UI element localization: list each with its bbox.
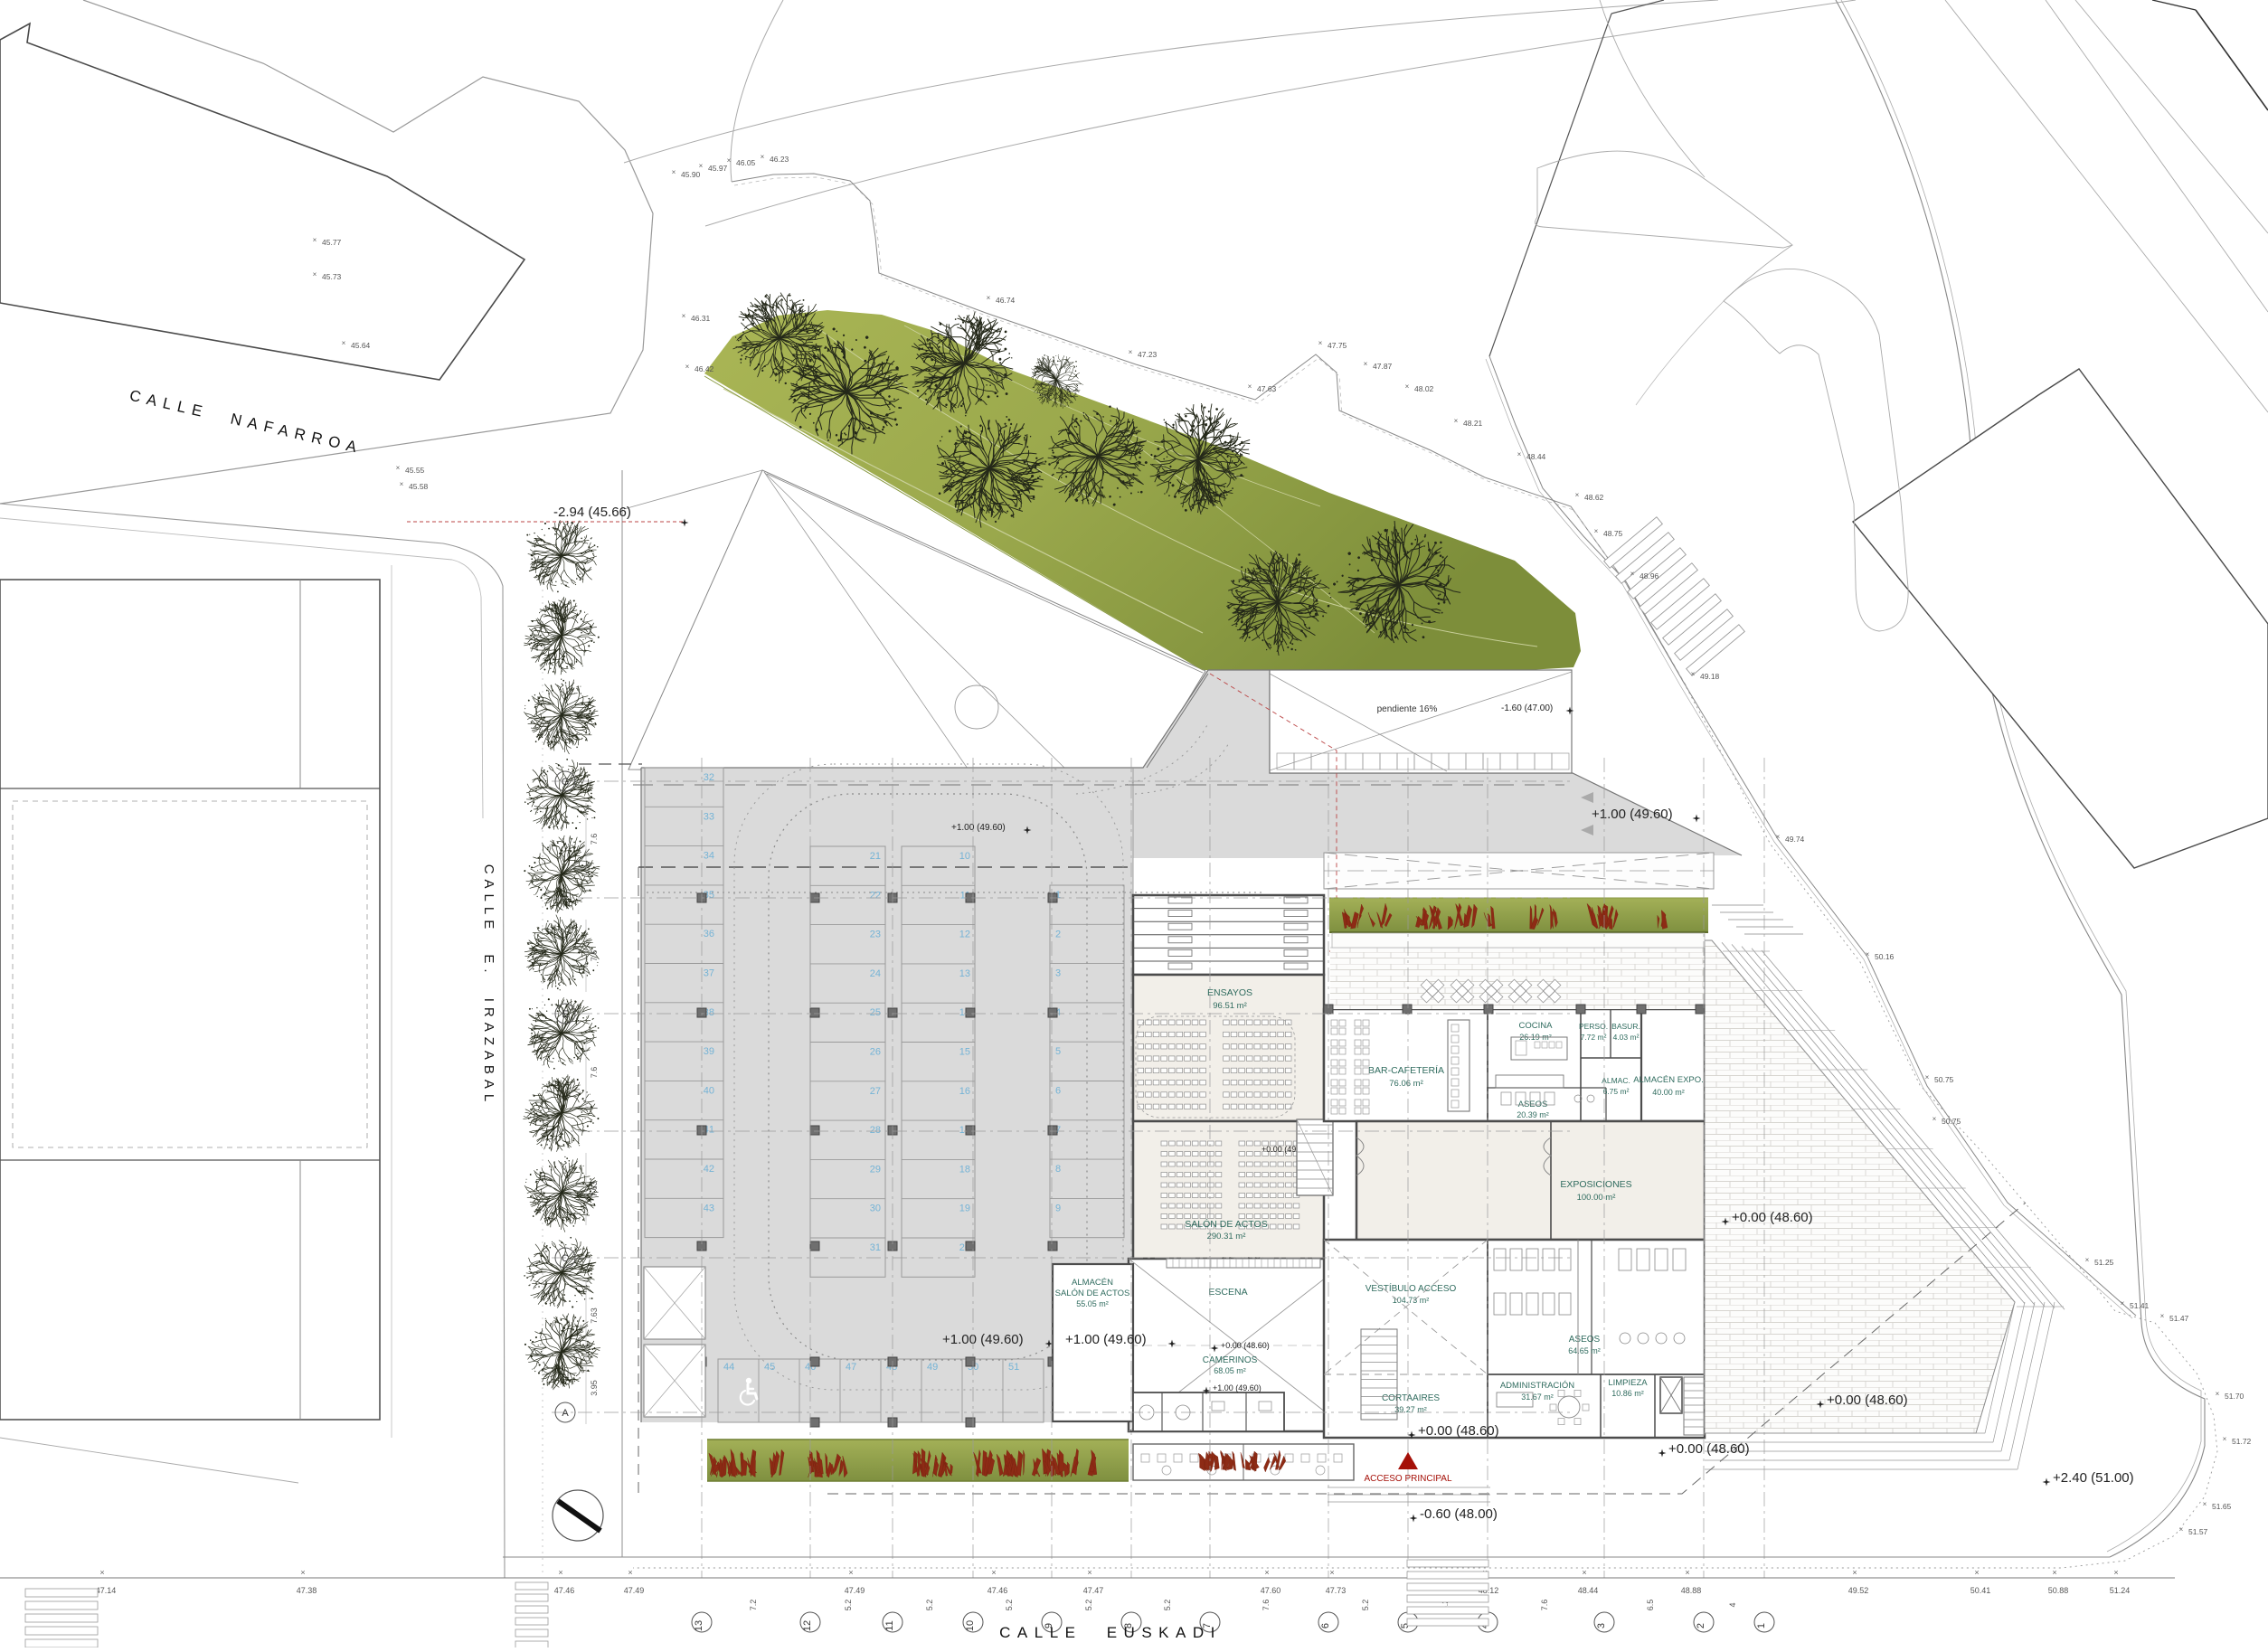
svg-text:76.06 m²: 76.06 m² [1389, 1079, 1423, 1089]
svg-text:×: × [2113, 1568, 2118, 1577]
svg-text:A: A [562, 1408, 569, 1419]
svg-text:50.41: 50.41 [1970, 1586, 1991, 1595]
svg-text:23: 23 [870, 930, 881, 940]
svg-text:10.86 m²: 10.86 m² [1611, 1389, 1644, 1398]
svg-text:×: × [628, 1568, 632, 1577]
svg-text:45.58: 45.58 [409, 482, 429, 491]
svg-text:3: 3 [1596, 1623, 1607, 1628]
svg-text:+0.00 (48.60): +0.00 (48.60) [1732, 1210, 1813, 1225]
svg-text:G: G [562, 777, 570, 788]
svg-text:45.73: 45.73 [322, 272, 342, 281]
svg-text:29: 29 [870, 1164, 881, 1175]
svg-text:40.00 m²: 40.00 m² [1652, 1088, 1685, 1097]
svg-text:45.64: 45.64 [351, 341, 371, 350]
svg-text:48.96: 48.96 [1640, 571, 1659, 581]
svg-text:15: 15 [959, 1047, 970, 1058]
svg-text:16: 16 [959, 1086, 970, 1097]
svg-text:LIMPIEZA: LIMPIEZA [1608, 1378, 1648, 1388]
svg-text:×: × [2216, 1390, 2220, 1398]
svg-text:CALLE E. IRAZABAL: CALLE E. IRAZABAL [481, 864, 496, 1108]
svg-text:7.6: 7.6 [590, 1067, 599, 1079]
svg-text:×: × [987, 294, 991, 302]
svg-text:31: 31 [870, 1242, 881, 1253]
svg-text:×: × [761, 153, 765, 161]
svg-text:7.63: 7.63 [590, 1181, 599, 1197]
svg-text:+2.40 (51.00): +2.40 (51.00) [2053, 1470, 2134, 1486]
svg-text:×: × [313, 236, 317, 244]
svg-text:51.24: 51.24 [2110, 1586, 2131, 1595]
svg-text:×: × [2052, 1568, 2056, 1577]
svg-text:20.39 m²: 20.39 m² [1517, 1110, 1549, 1119]
svg-text:11: 11 [884, 1620, 895, 1630]
svg-text:48.62: 48.62 [1584, 493, 1604, 502]
svg-text:SALÓN DE ACTOS: SALÓN DE ACTOS [1185, 1218, 1267, 1230]
svg-text:×: × [1454, 417, 1459, 425]
svg-text:ENSAYOS: ENSAYOS [1207, 987, 1252, 998]
svg-text:51.72: 51.72 [2232, 1437, 2252, 1446]
svg-text:46.05: 46.05 [736, 158, 756, 167]
svg-text:CAMERINOS: CAMERINOS [1203, 1355, 1258, 1365]
svg-text:64.65 m²: 64.65 m² [1568, 1346, 1601, 1355]
svg-text:34: 34 [704, 851, 714, 862]
svg-text:2: 2 [1055, 929, 1061, 939]
svg-text:×: × [300, 1568, 305, 1577]
svg-text:5.2: 5.2 [925, 1600, 934, 1611]
svg-text:5.2: 5.2 [1163, 1600, 1172, 1611]
svg-text:49.18: 49.18 [1700, 672, 1720, 681]
svg-text:39.27 m²: 39.27 m² [1394, 1405, 1427, 1414]
svg-text:×: × [2085, 1256, 2090, 1264]
svg-text:49.52: 49.52 [1848, 1586, 1869, 1595]
svg-text:×: × [2203, 1500, 2207, 1508]
svg-text:BASUR.: BASUR. [1611, 1022, 1640, 1031]
svg-text:×: × [400, 480, 404, 488]
svg-text:×: × [313, 270, 317, 278]
svg-text:10: 10 [965, 1620, 976, 1631]
svg-text:+1.00 (49.60): +1.00 (49.60) [951, 823, 1006, 833]
svg-text:CORTAAIRES: CORTAAIRES [1382, 1393, 1440, 1403]
svg-text:28: 28 [870, 1125, 881, 1136]
svg-text:×: × [1248, 382, 1252, 391]
svg-text:5.2: 5.2 [844, 1600, 853, 1611]
svg-text:SALÓN DE ACTOS: SALÓN DE ACTOS [1055, 1289, 1130, 1298]
svg-text:+0.00 (48.60): +0.00 (48.60) [1827, 1392, 1908, 1408]
svg-text:×: × [1776, 833, 1781, 841]
svg-text:×: × [848, 1568, 853, 1577]
svg-text:45: 45 [764, 1362, 775, 1373]
svg-text:×: × [1405, 382, 1410, 391]
svg-text:+0.00 (48.60): +0.00 (48.60) [1221, 1341, 1270, 1350]
svg-text:46.42: 46.42 [695, 364, 714, 373]
svg-text:VESTÍBULO ACCESO: VESTÍBULO ACCESO [1366, 1282, 1457, 1294]
svg-text:7.6: 7.6 [1262, 1600, 1271, 1611]
svg-text:BAR-CAFETERÍA: BAR-CAFETERÍA [1368, 1064, 1444, 1076]
svg-text:5: 5 [1055, 1046, 1061, 1057]
svg-text:47.49: 47.49 [624, 1586, 645, 1595]
svg-text:ASEOS: ASEOS [1518, 1100, 1548, 1109]
svg-text:8: 8 [1055, 1164, 1061, 1175]
svg-text:4.03 m²: 4.03 m² [1613, 1033, 1640, 1042]
svg-text:24: 24 [870, 968, 881, 979]
svg-text:7.2: 7.2 [749, 1600, 758, 1611]
svg-text:12: 12 [959, 930, 970, 940]
svg-text:5.2: 5.2 [1361, 1600, 1370, 1611]
svg-text:12: 12 [802, 1620, 813, 1631]
svg-text:×: × [558, 1568, 562, 1577]
svg-text:ALMACÉN: ALMACÉN [1072, 1278, 1113, 1288]
svg-text:×: × [1925, 1073, 1930, 1081]
svg-text:51.70: 51.70 [2225, 1392, 2244, 1401]
svg-text:×: × [2121, 1299, 2125, 1307]
svg-text:6.75 m²: 6.75 m² [1603, 1087, 1630, 1096]
svg-text:×: × [342, 339, 346, 347]
svg-text:48.21: 48.21 [1463, 419, 1483, 428]
svg-text:68.05 m²: 68.05 m² [1214, 1366, 1246, 1375]
svg-text:ADMINISTRACIÓN: ADMINISTRACIÓN [1500, 1381, 1574, 1391]
svg-text:×: × [1933, 1115, 1937, 1123]
svg-text:51.47: 51.47 [2169, 1314, 2189, 1323]
svg-text:51.57: 51.57 [2188, 1527, 2208, 1536]
svg-text:2: 2 [1696, 1623, 1706, 1628]
svg-text:49.74: 49.74 [1785, 835, 1805, 844]
svg-text:48.44: 48.44 [1526, 452, 1546, 461]
svg-text:×: × [1630, 570, 1635, 578]
svg-text:47.47: 47.47 [1083, 1586, 1104, 1595]
svg-text:1: 1 [1756, 1623, 1767, 1628]
svg-text:13: 13 [694, 1620, 704, 1631]
svg-text:46.23: 46.23 [770, 155, 789, 164]
svg-text:×: × [1685, 1568, 1689, 1577]
svg-text:×: × [1974, 1568, 1979, 1577]
svg-text:47.14: 47.14 [96, 1586, 117, 1595]
svg-text:47.75: 47.75 [1328, 341, 1347, 350]
svg-text:47.46: 47.46 [554, 1586, 575, 1595]
svg-text:+0.00 (48.60): +0.00 (48.60) [1668, 1441, 1750, 1457]
svg-text:ASEOS: ASEOS [1569, 1335, 1601, 1345]
svg-text:6: 6 [1055, 1086, 1061, 1097]
svg-text:E: E [562, 1009, 568, 1020]
svg-text:9: 9 [1055, 1203, 1061, 1213]
svg-text:×: × [699, 162, 704, 170]
svg-text:51.25: 51.25 [2094, 1258, 2114, 1267]
svg-text:7.72 m²: 7.72 m² [1581, 1033, 1607, 1042]
svg-text:COCINA: COCINA [1519, 1021, 1554, 1031]
svg-text:×: × [2160, 1312, 2165, 1320]
svg-text:×: × [1866, 950, 1870, 958]
svg-text:×: × [1329, 1568, 1334, 1577]
svg-text:+1.00 (49.60): +1.00 (49.60) [1592, 807, 1673, 822]
svg-text:48.75: 48.75 [1603, 529, 1623, 538]
svg-text:7.63: 7.63 [590, 1307, 599, 1324]
svg-text:46.74: 46.74 [996, 296, 1016, 305]
svg-text:27: 27 [870, 1086, 881, 1097]
svg-text:47.63: 47.63 [1257, 384, 1277, 393]
svg-text:×: × [1264, 1568, 1269, 1577]
svg-text:47: 47 [846, 1362, 856, 1373]
svg-text:×: × [396, 464, 401, 472]
svg-text:×: × [1691, 670, 1696, 678]
svg-text:40: 40 [704, 1085, 714, 1096]
svg-text:×: × [1594, 527, 1599, 535]
svg-text:51.41: 51.41 [2130, 1301, 2150, 1310]
svg-text:6.5: 6.5 [1646, 1600, 1655, 1611]
svg-text:pendiente 16%: pendiente 16% [1377, 704, 1438, 714]
svg-text:5.2: 5.2 [1084, 1600, 1093, 1611]
svg-text:30: 30 [870, 1204, 881, 1214]
svg-text:25: 25 [870, 1007, 881, 1018]
svg-text:51: 51 [1008, 1362, 1019, 1373]
svg-text:48.02: 48.02 [1414, 384, 1434, 393]
svg-text:22: 22 [870, 890, 881, 901]
svg-text:PERSO.: PERSO. [1579, 1022, 1608, 1031]
svg-text:48.44: 48.44 [1578, 1586, 1599, 1595]
svg-text:ESCENA: ESCENA [1208, 1287, 1247, 1298]
svg-text:7.6: 7.6 [590, 834, 599, 845]
svg-text:3: 3 [1055, 968, 1061, 979]
svg-text:-2.94 (45.66): -2.94 (45.66) [553, 505, 631, 520]
svg-text:3.95: 3.95 [590, 1380, 599, 1396]
svg-text:+0.00 (48.60): +0.00 (48.60) [1418, 1423, 1499, 1439]
svg-text:+1.00 (49.60): +1.00 (49.60) [942, 1332, 1024, 1347]
svg-text:ALMACÉN EXPO.: ALMACÉN EXPO. [1633, 1075, 1704, 1085]
svg-text:47.73: 47.73 [1326, 1586, 1347, 1595]
svg-text:EXPOSICIONES: EXPOSICIONES [1560, 1179, 1631, 1190]
svg-text:45.90: 45.90 [681, 170, 701, 179]
svg-text:7.6: 7.6 [590, 950, 599, 962]
svg-text:×: × [727, 156, 732, 165]
svg-text:50.75: 50.75 [1934, 1075, 1954, 1084]
svg-text:4: 4 [1728, 1602, 1737, 1607]
svg-text:×: × [2179, 1525, 2184, 1534]
svg-text:7.6: 7.6 [1540, 1600, 1549, 1611]
svg-text:47.87: 47.87 [1373, 362, 1393, 371]
svg-text:×: × [1582, 1568, 1586, 1577]
svg-text:C: C [562, 1253, 569, 1264]
svg-text:290.31 m²: 290.31 m² [1207, 1232, 1246, 1241]
svg-text:55.05 m²: 55.05 m² [1076, 1299, 1109, 1308]
svg-text:45.55: 45.55 [405, 466, 425, 475]
svg-text:×: × [1852, 1568, 1857, 1577]
svg-text:ALMAC.: ALMAC. [1602, 1076, 1630, 1085]
svg-text:×: × [672, 168, 676, 176]
svg-text:45.77: 45.77 [322, 238, 342, 247]
svg-text:10: 10 [959, 851, 970, 862]
svg-text:51.65: 51.65 [2212, 1502, 2232, 1511]
svg-text:CALLE EUSKADI: CALLE EUSKADI [999, 1624, 1222, 1641]
svg-text:47.46: 47.46 [988, 1586, 1008, 1595]
svg-text:-1.60 (47.00): -1.60 (47.00) [1501, 703, 1553, 713]
svg-text:47.49: 47.49 [845, 1586, 865, 1595]
svg-text:49: 49 [927, 1362, 938, 1373]
svg-text:47.23: 47.23 [1138, 350, 1158, 359]
svg-text:33: 33 [704, 811, 714, 822]
svg-text:39: 39 [704, 1046, 714, 1057]
svg-text:×: × [2223, 1435, 2227, 1443]
svg-text:37: 37 [704, 968, 714, 979]
svg-text:43: 43 [704, 1203, 714, 1213]
svg-text:44: 44 [723, 1362, 734, 1373]
svg-text:13: 13 [959, 968, 970, 979]
svg-text:42: 42 [704, 1164, 714, 1175]
svg-text:×: × [1517, 450, 1522, 458]
svg-text:6: 6 [1320, 1623, 1331, 1628]
svg-text:+1.00 (49.60): +1.00 (49.60) [1065, 1332, 1147, 1347]
svg-text:5.2: 5.2 [1005, 1600, 1014, 1611]
svg-text:×: × [1087, 1568, 1091, 1577]
svg-text:-0.60 (48.00): -0.60 (48.00) [1420, 1506, 1498, 1522]
svg-text:48.88: 48.88 [1681, 1586, 1702, 1595]
svg-text:×: × [1129, 348, 1133, 356]
svg-text:19: 19 [959, 1204, 970, 1214]
svg-text:18: 18 [959, 1164, 970, 1175]
svg-text:×: × [682, 312, 686, 320]
svg-text:×: × [1364, 360, 1368, 368]
svg-text:26: 26 [870, 1047, 881, 1058]
svg-text:×: × [685, 363, 690, 371]
svg-text:47.60: 47.60 [1261, 1586, 1281, 1595]
svg-text:50.16: 50.16 [1875, 952, 1895, 961]
svg-text:×: × [99, 1568, 104, 1577]
svg-text:47.38: 47.38 [297, 1586, 317, 1595]
svg-text:45.97: 45.97 [708, 164, 728, 173]
svg-text:50.75: 50.75 [1942, 1117, 1961, 1126]
svg-text:100.00 m²: 100.00 m² [1577, 1193, 1616, 1203]
svg-text:31.67 m²: 31.67 m² [1521, 1392, 1554, 1402]
svg-text:+1.00 (49.60): +1.00 (49.60) [1213, 1383, 1262, 1392]
svg-text:×: × [1318, 339, 1323, 347]
svg-text:96.51 m²: 96.51 m² [1213, 1001, 1247, 1011]
svg-text:36: 36 [704, 929, 714, 939]
svg-text:50.88: 50.88 [2048, 1586, 2069, 1595]
svg-text:×: × [1575, 491, 1580, 499]
svg-text:ACCESO PRINCIPAL: ACCESO PRINCIPAL [1364, 1474, 1451, 1484]
svg-text:×: × [991, 1568, 996, 1577]
svg-text:46.31: 46.31 [691, 314, 711, 323]
svg-text:21: 21 [870, 851, 881, 862]
